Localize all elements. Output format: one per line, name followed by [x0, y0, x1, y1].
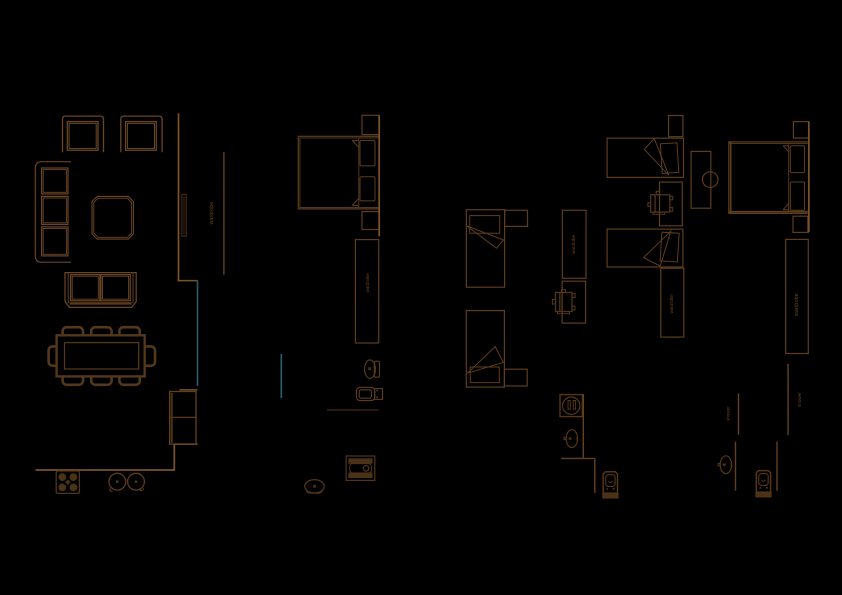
svg-text:shower: shower [797, 392, 802, 407]
svg-text:wardrobe: wardrobe [669, 294, 674, 314]
svg-text:wardrobe: wardrobe [794, 293, 800, 316]
svg-text:wardrobe: wardrobe [365, 273, 370, 293]
svg-text:wardrobe: wardrobe [571, 234, 576, 254]
svg-text:wardrobe: wardrobe [209, 202, 215, 225]
svg-text:shower: shower [725, 406, 730, 421]
